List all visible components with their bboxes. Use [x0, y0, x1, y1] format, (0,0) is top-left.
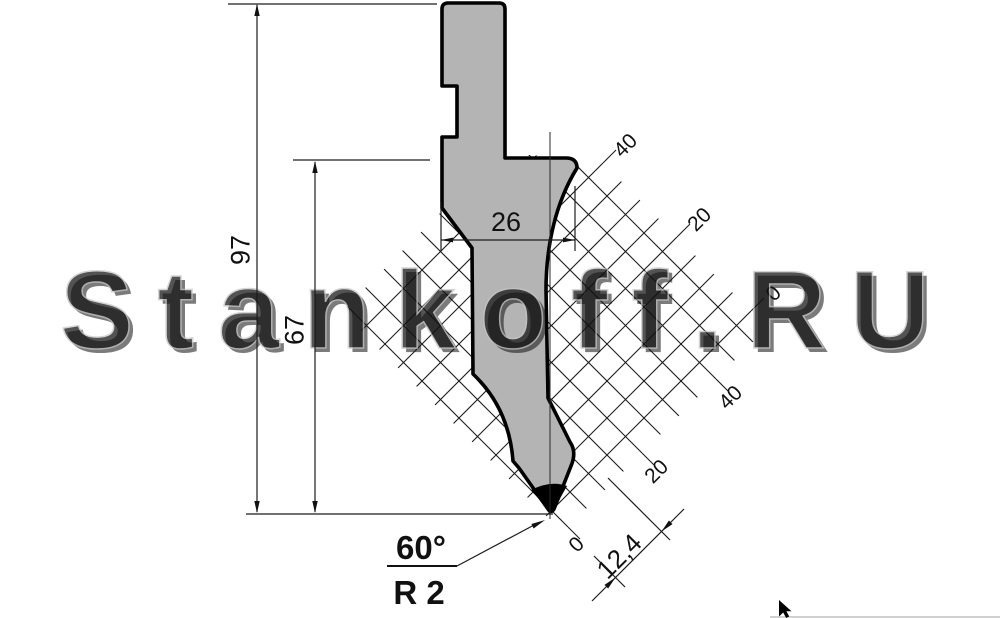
radius-label: R 2	[393, 574, 444, 611]
angle-label: 60°	[396, 529, 446, 566]
drawing-canvas: 40 20 0 40 20 0 Stankoff.RU Stankoff.RU …	[0, 0, 1000, 618]
dim-label-97: 97	[225, 235, 255, 265]
dim-label-67: 67	[279, 315, 309, 345]
watermark: Stankoff.RU Stankoff.RU	[60, 249, 957, 376]
dim-label-26: 26	[491, 207, 521, 237]
watermark-text: Stankoff.RU	[60, 249, 953, 372]
